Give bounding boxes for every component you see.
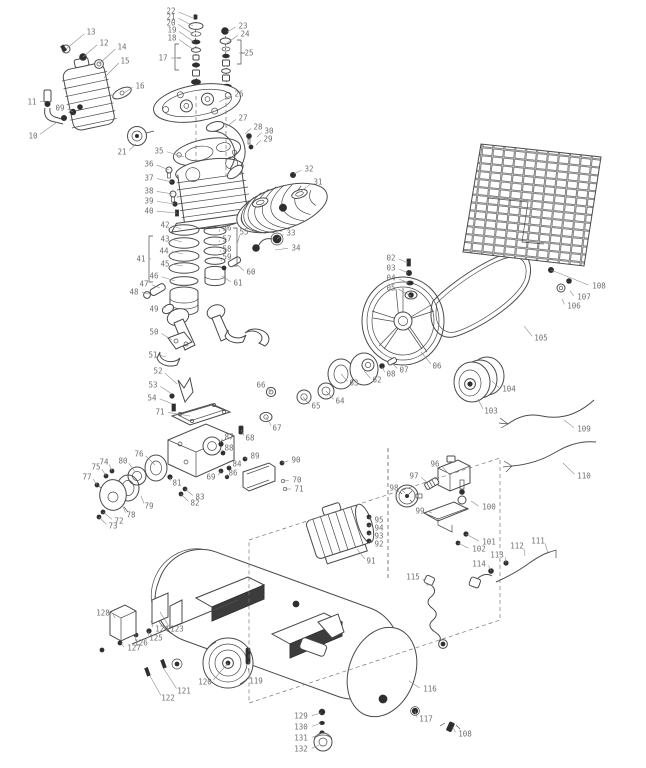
leader-line-83	[185, 489, 193, 495]
part-label-132: 132	[294, 745, 308, 754]
leader-line-12	[83, 45, 97, 57]
part-label-08: 08	[386, 370, 396, 379]
leader-line-82	[181, 494, 188, 501]
part-label-106: 106	[567, 302, 581, 311]
bracket-17	[175, 44, 181, 70]
part-label-60: 60	[246, 268, 256, 277]
part-label-75: 75	[91, 463, 100, 472]
part-label-122: 122	[161, 694, 175, 703]
part-label-55: 55	[239, 228, 248, 237]
part-label-17: 17	[158, 54, 167, 63]
leader-line-37	[157, 179, 172, 182]
sight-glass	[128, 127, 155, 146]
part-label-44: 44	[159, 247, 169, 256]
part-label-59: 59	[222, 253, 231, 262]
part-label-57: 57	[222, 235, 231, 244]
part-label-66: 66	[256, 381, 266, 390]
part-label-14: 14	[117, 43, 127, 52]
part-label-130: 130	[294, 723, 308, 732]
part-label-24: 24	[240, 30, 250, 39]
wiring-harnesses	[499, 400, 596, 472]
part-label-12: 12	[99, 39, 108, 48]
part-label-91: 91	[366, 557, 375, 566]
part-label-65: 65	[311, 402, 320, 411]
part-label-90: 90	[291, 456, 301, 465]
leader-line-101	[466, 534, 479, 541]
part-label-110: 110	[577, 472, 591, 481]
part-label-100: 100	[482, 503, 496, 512]
part-label-21: 21	[117, 148, 126, 157]
leader-line-29	[256, 140, 261, 145]
part-label-109: 109	[577, 425, 591, 434]
part-label-71: 71	[155, 408, 164, 417]
leader-line-112	[524, 548, 525, 556]
motor-pulley	[454, 357, 504, 402]
part-label-36: 36	[144, 160, 154, 169]
v-belt	[431, 252, 531, 337]
leader-line-106	[562, 299, 564, 304]
outlet-pipe	[469, 550, 556, 588]
leader-line-22	[179, 12, 193, 18]
part-label-87: 87	[224, 433, 233, 442]
part-label-99: 99	[415, 507, 424, 516]
part-label-29: 29	[263, 135, 272, 144]
part-label-61: 61	[233, 279, 242, 288]
part-label-62: 62	[372, 376, 381, 385]
part-label-67: 67	[272, 424, 281, 433]
leader-line-63	[341, 374, 347, 381]
part-label-27: 27	[238, 114, 247, 123]
part-label-45: 45	[160, 260, 169, 269]
part-label-98: 98	[389, 484, 399, 493]
leader-line-56	[219, 229, 220, 232]
part-label-103: 103	[484, 407, 498, 416]
leader-line-45	[173, 264, 183, 266]
part-label-32: 32	[304, 165, 313, 174]
leader-line-111	[545, 543, 548, 553]
part-label-18: 18	[167, 34, 177, 43]
part-label-111: 111	[531, 537, 545, 546]
tube-fitting	[253, 233, 283, 251]
leader-line-103	[478, 399, 483, 409]
leader-line-72	[103, 512, 112, 519]
leader-line-52	[165, 373, 177, 384]
part-label-73: 73	[108, 522, 117, 531]
leader-line-18	[179, 40, 194, 50]
part-label-104: 104	[502, 385, 516, 394]
leader-line-97	[421, 477, 428, 483]
compressor-exploded-diagram: 1312141516110910222120191817232425262728…	[0, 0, 646, 768]
part-label-119: 119	[249, 677, 263, 686]
part-label-108: 108	[458, 730, 472, 739]
part-label-80: 80	[118, 457, 128, 466]
part-label-81: 81	[172, 479, 181, 488]
discharge-hose	[424, 575, 448, 649]
part-label-51: 51	[148, 351, 157, 360]
leader-line-34	[275, 248, 288, 250]
part-label-11: 11	[27, 98, 36, 107]
fan-shroud	[463, 144, 601, 292]
part-label-78: 78	[126, 511, 136, 520]
part-label-76: 76	[134, 450, 144, 459]
leader-line-51	[161, 355, 166, 357]
muffler-screw	[290, 172, 295, 177]
part-label-131: 131	[294, 734, 308, 743]
part-label-107: 107	[577, 293, 591, 302]
leader-line-03	[399, 269, 408, 273]
leader-line-21	[129, 144, 136, 150]
part-label-82: 82	[190, 499, 199, 508]
accessory-box	[110, 605, 136, 641]
part-label-121: 121	[177, 687, 191, 696]
part-label-129: 129	[294, 712, 308, 721]
part-label-39: 39	[144, 197, 153, 206]
leader-line-21	[178, 18, 193, 26]
part-label-40: 40	[144, 207, 154, 216]
part-label-71: 71	[294, 485, 303, 494]
check-valve	[111, 85, 133, 102]
part-label-33: 33	[286, 229, 295, 238]
exploded-diagram-page: 1312141516110910222120191817232425262728…	[0, 0, 646, 768]
valve-stack-left	[189, 14, 203, 96]
part-label-92: 92	[374, 540, 383, 549]
part-label-84: 84	[232, 460, 242, 469]
part-label-38: 38	[144, 187, 154, 196]
leader-line-100	[471, 501, 479, 506]
leader-line-54	[160, 399, 173, 404]
piston-rings-large	[144, 225, 199, 316]
leader-line-105	[524, 326, 532, 336]
part-label-88: 88	[224, 444, 234, 453]
leader-line-53	[160, 386, 172, 394]
part-label-28: 28	[253, 123, 263, 132]
part-label-03: 03	[386, 264, 395, 273]
part-label-70: 70	[292, 476, 302, 485]
part-label-41: 41	[136, 255, 145, 264]
leader-line-15	[104, 63, 119, 78]
part-label-47: 47	[139, 280, 148, 289]
part-label-125: 125	[149, 634, 163, 643]
part-label-10: 10	[28, 132, 38, 141]
leader-line-32	[294, 170, 301, 174]
part-label-105: 105	[534, 334, 548, 343]
leader-line-13	[66, 34, 84, 49]
part-label-123: 123	[170, 625, 184, 634]
leader-line-102	[458, 543, 468, 548]
leader-line-109	[564, 420, 574, 428]
leader-line-46	[162, 277, 175, 281]
part-label-31: 31	[313, 178, 322, 187]
part-label-25: 25	[244, 49, 253, 58]
part-label-115: 115	[406, 573, 420, 582]
leader-line-43	[173, 240, 182, 242]
part-label-120: 120	[198, 678, 212, 687]
part-label-128: 128	[96, 609, 110, 618]
part-label-113: 113	[490, 551, 504, 560]
part-label-69: 69	[206, 473, 215, 482]
part-label-86: 86	[228, 469, 238, 478]
part-label-46: 46	[149, 272, 159, 281]
part-label-50: 50	[149, 328, 159, 337]
leader-line-110	[563, 463, 575, 474]
leader-line-30	[257, 132, 262, 137]
part-label-35: 35	[154, 147, 163, 156]
part-label-52: 52	[153, 367, 162, 376]
part-label-13: 13	[86, 28, 95, 37]
part-label-37: 37	[144, 174, 153, 183]
part-label-15: 15	[120, 57, 129, 66]
part-label-74: 74	[99, 458, 109, 467]
leader-line-60	[236, 264, 244, 270]
part-label-89: 89	[250, 452, 259, 461]
leader-line-28	[245, 129, 251, 134]
side-cover-plate	[243, 461, 287, 491]
part-label-108: 108	[592, 282, 606, 291]
part-label-16: 16	[135, 82, 145, 91]
leader-line-122	[150, 676, 161, 696]
part-label-04: 04	[386, 274, 396, 283]
leader-line-130	[312, 723, 321, 726]
leader-line-73	[99, 517, 106, 524]
leader-line-107	[570, 291, 574, 296]
part-label-77: 77	[82, 473, 91, 482]
connecting-rods	[157, 302, 269, 366]
electric-motor	[303, 495, 380, 567]
part-label-68: 68	[245, 434, 255, 443]
part-label-97: 97	[409, 472, 418, 481]
part-label-34: 34	[291, 244, 301, 253]
part-label-54: 54	[147, 394, 157, 403]
part-label-07: 07	[399, 366, 408, 375]
leader-line-14	[99, 49, 116, 64]
part-label-02: 02	[386, 254, 395, 263]
part-label-48: 48	[129, 288, 139, 297]
unloader-parts	[239, 387, 276, 434]
pressure-switch-group	[388, 448, 470, 578]
part-label-116: 116	[423, 685, 437, 694]
part-label-63: 63	[349, 379, 358, 388]
aftercooler	[58, 45, 118, 132]
caster	[314, 709, 332, 751]
part-label-56: 56	[222, 224, 232, 233]
part-label-79: 79	[144, 502, 153, 511]
part-label-43: 43	[160, 235, 169, 244]
part-label-127: 127	[127, 644, 141, 653]
part-label-112: 112	[510, 542, 524, 551]
part-label-102: 102	[472, 545, 486, 554]
part-label-09: 09	[55, 104, 64, 113]
leader-line-108	[453, 727, 455, 732]
leader-line-58	[220, 250, 221, 252]
part-label-26: 26	[234, 90, 244, 99]
part-label-96: 96	[430, 460, 440, 469]
tank-plugs	[411, 707, 460, 732]
part-label-49: 49	[149, 305, 158, 314]
part-label-117: 117	[419, 715, 433, 724]
part-label-05: 05	[386, 284, 395, 293]
part-label-64: 64	[335, 397, 345, 406]
part-label-124: 124	[155, 625, 169, 634]
part-label-114: 114	[472, 560, 486, 569]
leader-line-121	[164, 669, 177, 689]
leader-line-70	[283, 480, 289, 481]
leader-line-40	[157, 211, 177, 213]
oil-dipper	[170, 378, 193, 411]
part-label-06: 06	[432, 362, 442, 371]
leader-line-129	[312, 713, 321, 716]
part-label-53: 53	[148, 381, 157, 390]
part-label-42: 42	[160, 221, 169, 230]
leader-line-10	[40, 122, 57, 134]
